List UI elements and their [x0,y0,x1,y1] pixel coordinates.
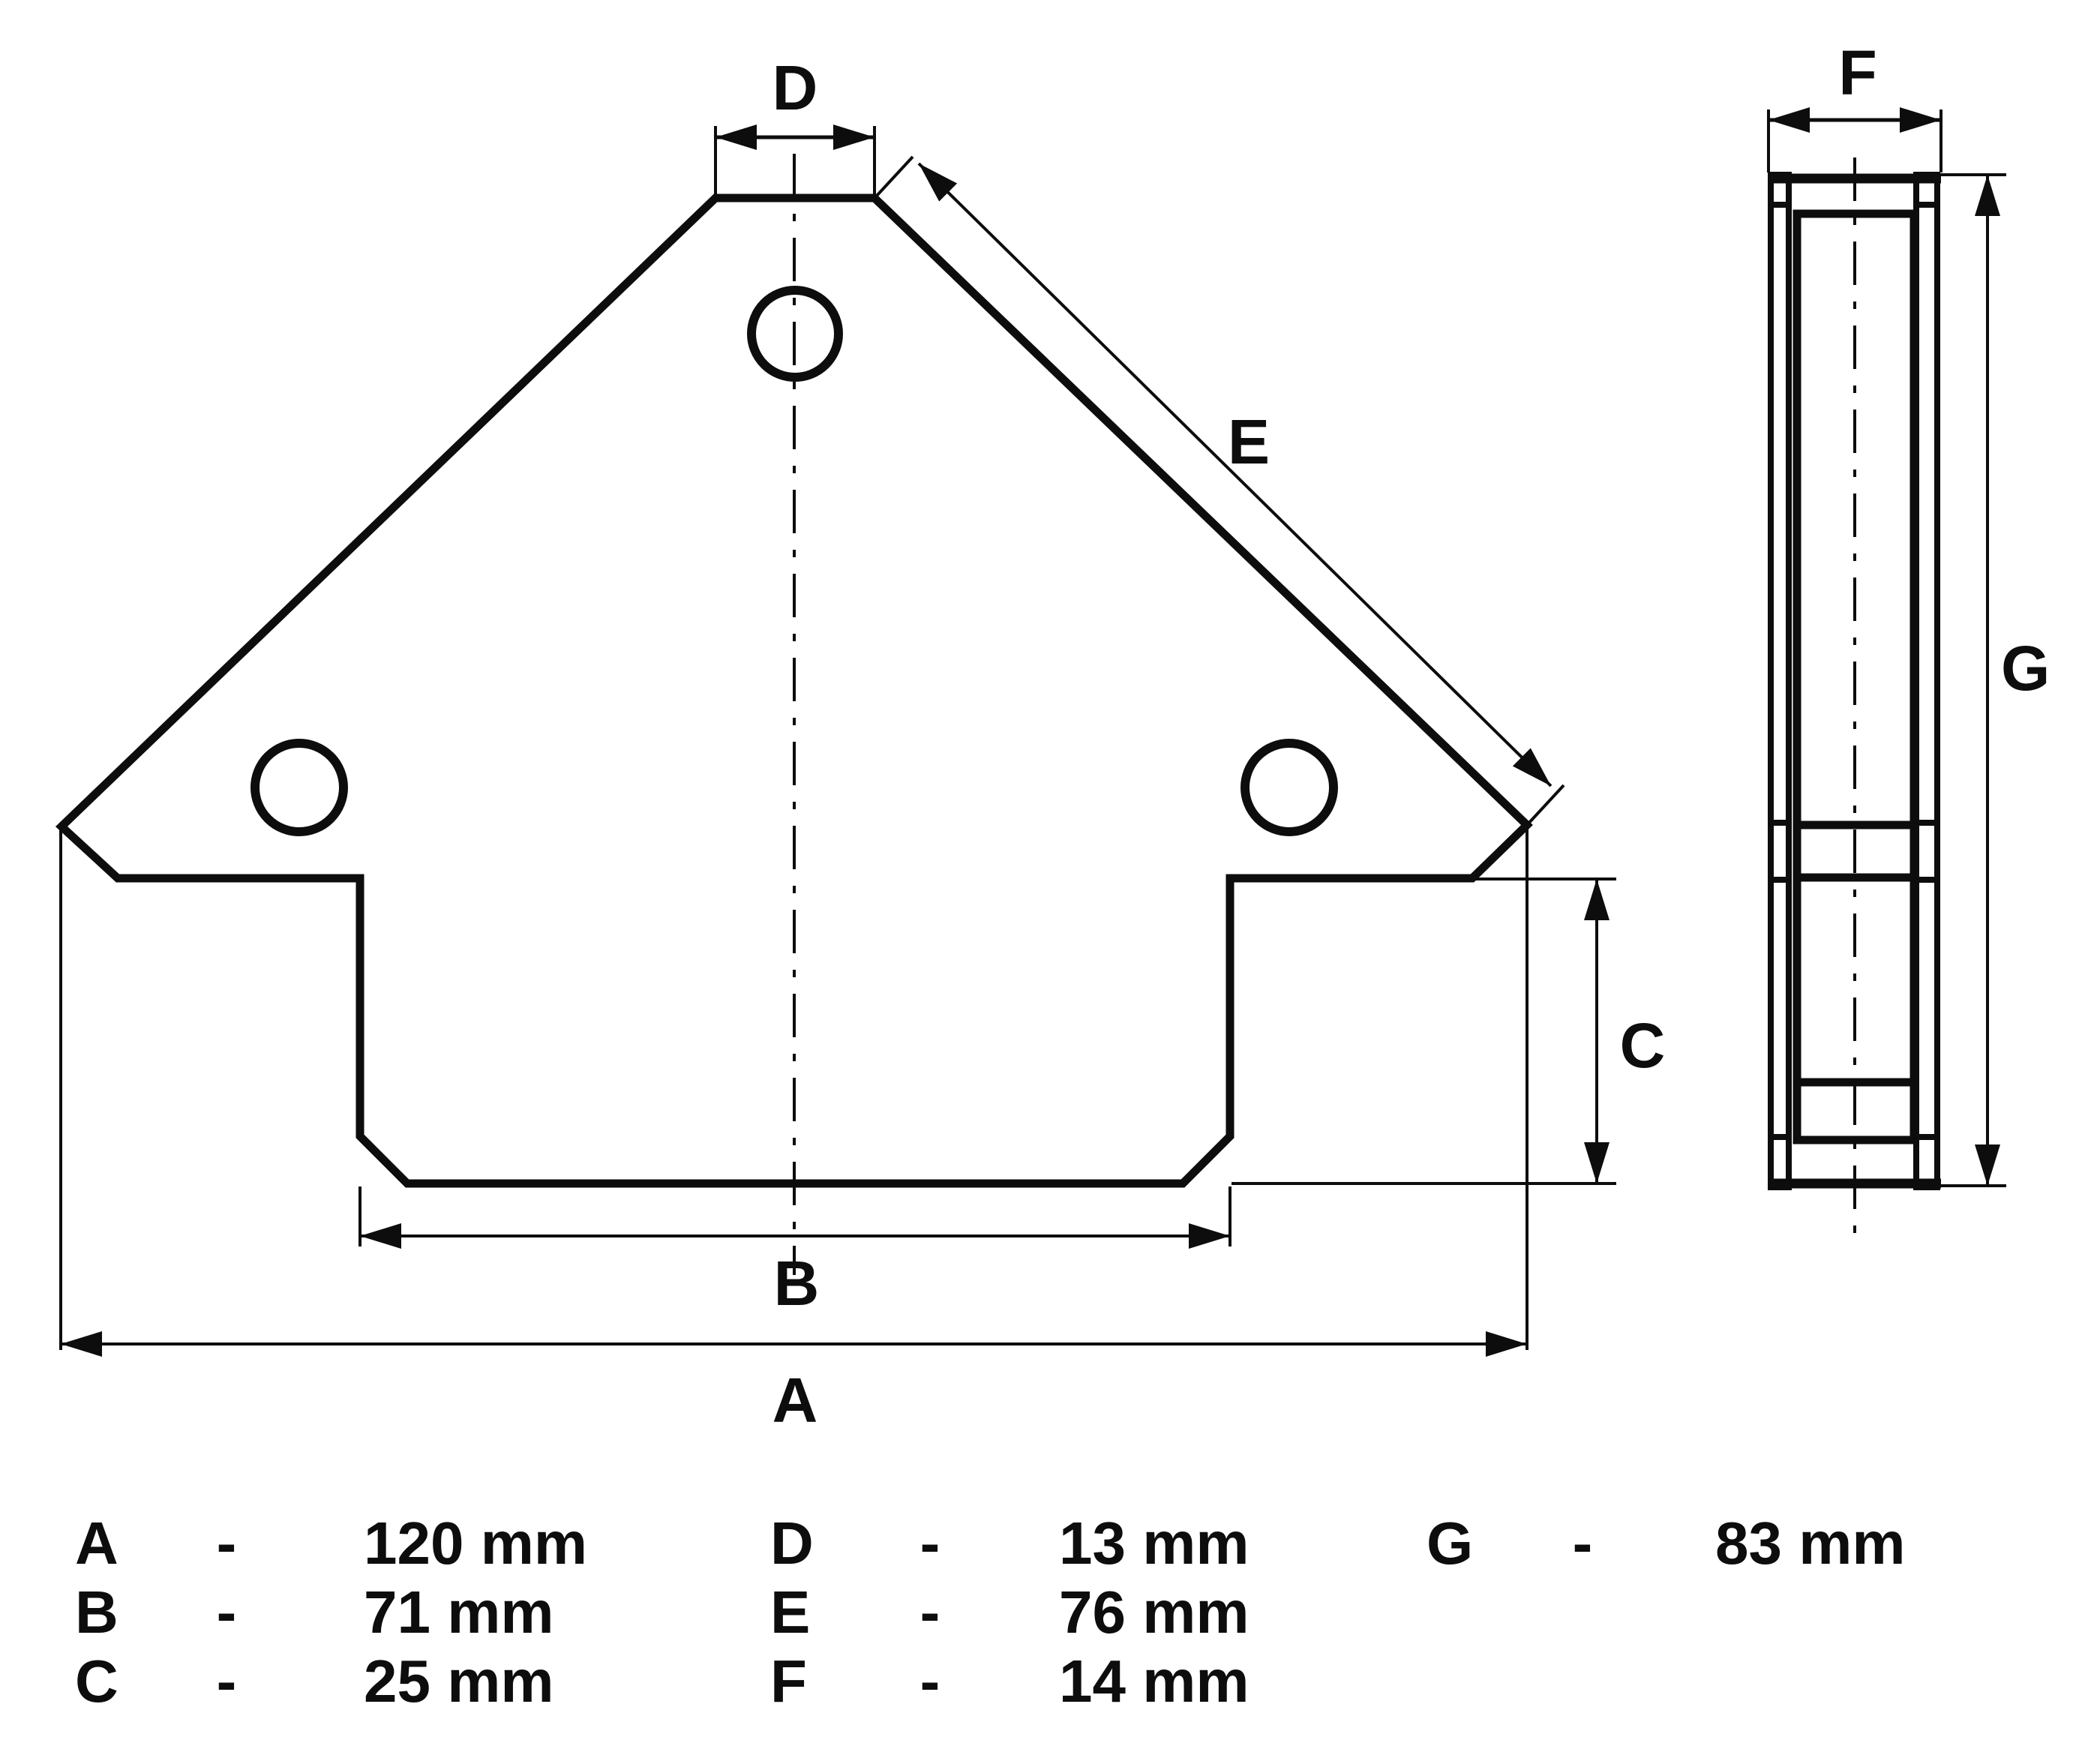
table-cell-dash: - [920,1648,940,1714]
dimension-table: A - 120 mm B - 71 mm C - 25 mm D - 13 mm… [75,1510,1905,1714]
table-cell-dash: - [920,1510,940,1576]
f-label: F [1838,37,1876,108]
table-cell-letter: D [770,1510,814,1576]
table-cell-dash: - [920,1579,940,1645]
e-label: E [1228,406,1270,477]
dimension-C: C [1231,879,1665,1183]
front-view: D E C B [61,52,1665,1435]
table-cell-letter: A [75,1510,118,1576]
d-label: D [772,52,818,123]
table-cell-value: 76 mm [1059,1579,1249,1645]
table-cell-letter: E [770,1579,810,1645]
side-plate-right [1916,175,1937,1187]
table-cell-letter: B [75,1579,118,1645]
e-ext-bottom [1527,785,1564,825]
table-cell-dash: - [217,1510,237,1576]
table-cell-dash: - [217,1579,237,1645]
table-cell-value: 13 mm [1059,1510,1249,1576]
c-label: C [1620,1010,1666,1081]
table-cell-letter: F [770,1648,807,1714]
a-label: A [772,1365,818,1435]
side-plate-left [1771,175,1789,1187]
e-ext-top [876,157,913,196]
drawing-page: D E C B [0,0,2100,1764]
table-cell-value: 83 mm [1715,1510,1905,1576]
g-label: G [2001,633,2050,703]
technical-drawing: D E C B [0,0,2100,1764]
side-view: F G [1768,37,2050,1237]
table-cell-letter: G [1426,1510,1473,1576]
b-label: B [774,1248,820,1318]
table-cell-letter: C [75,1648,118,1714]
table-cell-value: 120 mm [364,1510,587,1576]
dimension-B: B [360,1186,1230,1318]
table-cell-dash: - [1573,1510,1593,1576]
table-cell-value: 14 mm [1059,1648,1249,1714]
dimension-F: F [1768,37,1941,172]
table-cell-dash: - [217,1648,237,1714]
table-cell-value: 71 mm [364,1579,553,1645]
table-cell-value: 25 mm [364,1648,553,1714]
